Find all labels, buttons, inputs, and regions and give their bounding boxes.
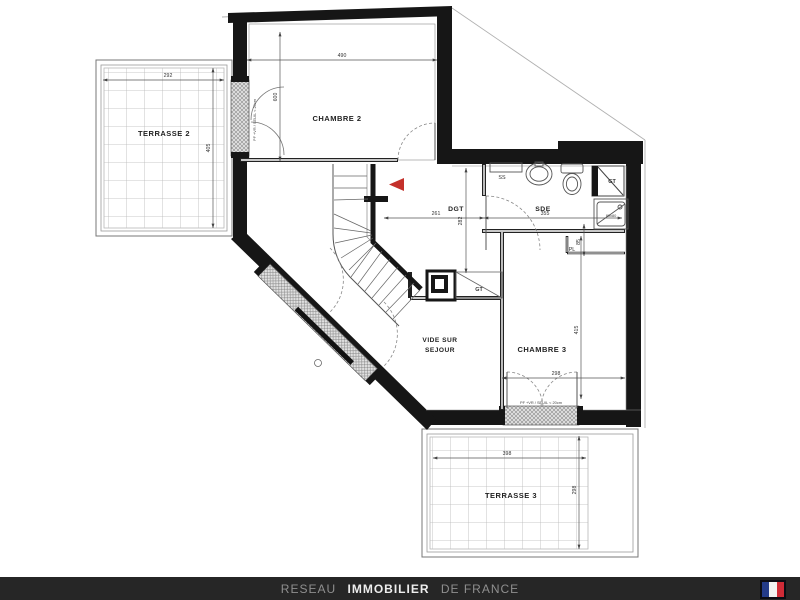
floorplan-drawing: TERRASSE 2 292 405 TERRASSE 3 398 298 — [0, 0, 800, 577]
label-terrasse2: TERRASSE 2 — [138, 129, 190, 138]
floorplan-page: TERRASSE 2 292 405 TERRASSE 3 398 298 — [0, 0, 800, 600]
door-spec-terrace3: PF +VR / SEUIL < 20cm — [520, 400, 562, 405]
dim-terrasse3-width: 398 — [503, 451, 512, 457]
dim-chambre3-width: 298 — [552, 371, 561, 377]
terrace2-door-hatch — [231, 76, 249, 158]
label-gt-center: GT — [475, 287, 483, 293]
dim-terrasse2-height: 405 — [206, 144, 212, 153]
footer-bar: RESEAU IMMOBILIER DE FRANCE — [0, 577, 800, 600]
dim-chambre3-height: 415 — [574, 326, 580, 335]
label-ss: SS — [498, 175, 506, 181]
terrace3-door-hatch — [499, 406, 583, 425]
french-flag-icon — [760, 580, 786, 599]
label-dgt: DGT — [448, 206, 464, 213]
label-chambre3: CHAMBRE 3 — [517, 345, 566, 354]
duct-center: GT — [427, 271, 502, 300]
label-shower-size: 80x80 — [606, 213, 617, 218]
footer-brand-text: RESEAU IMMOBILIER DE FRANCE — [281, 582, 519, 596]
stair-direction-arrow — [389, 178, 404, 191]
label-vide-line2: SEJOUR — [425, 347, 455, 354]
dim-chambre2-height: 600 — [273, 93, 279, 102]
label-vide-line1: VIDE SUR — [422, 337, 457, 344]
dim-placard: 85 — [576, 239, 582, 245]
dim-dgt-depth: 282 — [458, 217, 464, 226]
shower-tray: 80x80 — [594, 199, 628, 229]
label-pl: PL — [569, 247, 576, 253]
label-chambre2: CHAMBRE 2 — [312, 114, 361, 123]
label-terrasse3: TERRASSE 3 — [485, 491, 537, 500]
dim-sde-width: 355 — [541, 211, 550, 217]
footer-suffix: DE FRANCE — [441, 582, 519, 596]
toilet-icon — [561, 164, 583, 173]
door-swings — [251, 87, 577, 408]
terrace-2: TERRASSE 2 292 405 — [96, 60, 232, 236]
towel-rail — [490, 163, 522, 172]
dim-terrasse3-height: 298 — [572, 486, 578, 495]
door-spec-terrace2: PF +VR / SEUIL < 20cm — [252, 99, 257, 141]
label-gt-top: GT — [608, 179, 616, 185]
terrace-3: TERRASSE 3 398 298 — [422, 429, 638, 557]
footer-brand: IMMOBILIER — [348, 582, 430, 596]
footer-prefix: RESEAU — [281, 582, 336, 596]
dim-terrasse2-width: 292 — [164, 73, 173, 79]
staircase — [333, 164, 421, 326]
dim-chambre2-width: 490 — [338, 53, 347, 59]
dim-dgt-width: 261 — [432, 211, 441, 217]
duct-top-right: GT — [592, 166, 624, 196]
